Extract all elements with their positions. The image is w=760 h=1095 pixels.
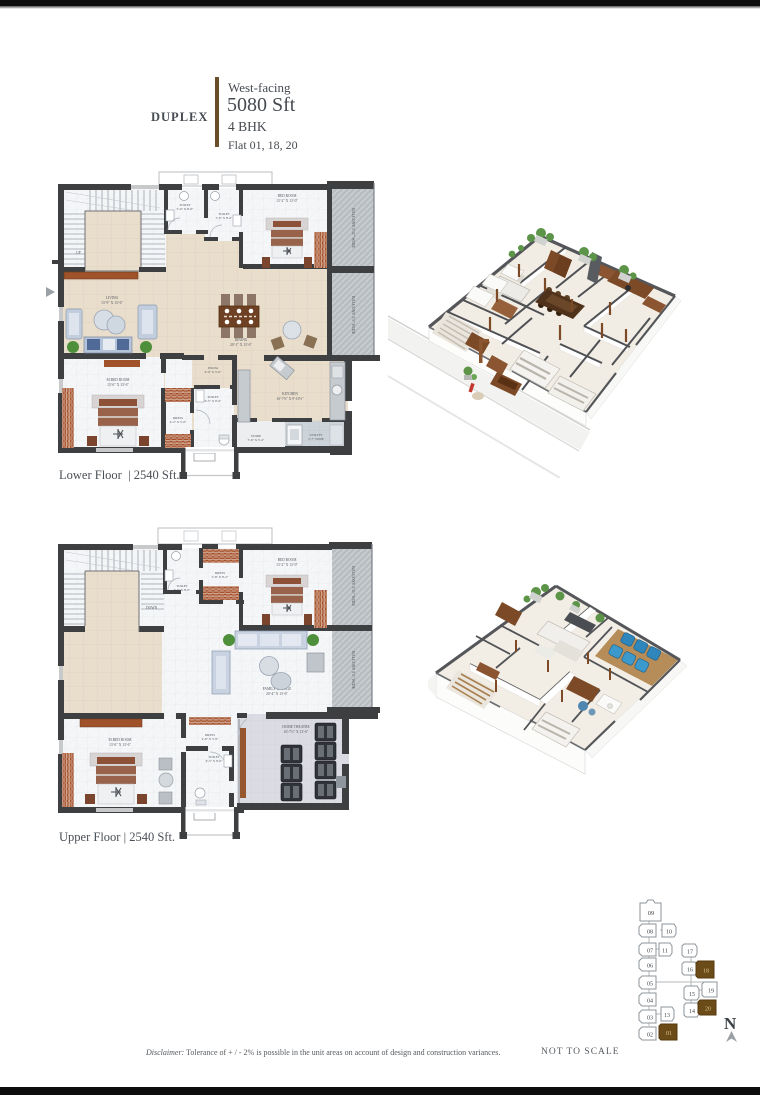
svg-text:17: 17 (687, 950, 693, 956)
svg-text:KITCHEN: KITCHEN (282, 392, 298, 396)
svg-text:LIVING: LIVING (106, 296, 119, 300)
svg-text:13'-6" X 13'-6": 13'-6" X 13'-6" (109, 743, 131, 747)
svg-text:19: 19 (708, 989, 714, 995)
svg-text:05: 05 (647, 982, 653, 988)
svg-text:BALCONY 5'11" WIDE: BALCONY 5'11" WIDE (351, 208, 356, 248)
svg-text:BALCONY 5'1" WIDE: BALCONY 5'1" WIDE (351, 296, 356, 334)
svg-text:DOWN: DOWN (146, 606, 158, 610)
svg-text:6'-0" X 5'-6": 6'-0" X 5'-6" (205, 370, 222, 374)
svg-text:16'-7½" X 9'-10½": 16'-7½" X 9'-10½" (276, 397, 304, 401)
svg-text:13'-2" X 13'-0": 13'-2" X 13'-0" (276, 563, 298, 567)
svg-text:16: 16 (687, 968, 693, 974)
svg-text:UP: UP (76, 251, 81, 255)
svg-text:16'-7½" X 13'-6": 16'-7½" X 13'-6" (284, 730, 309, 734)
svg-text:6'-5" X 9'-6": 6'-5" X 9'-6" (205, 399, 222, 403)
svg-text:08: 08 (647, 930, 653, 936)
svg-text:18: 18 (703, 969, 709, 975)
svg-text:5'-8" X 8'-2": 5'-8" X 8'-2" (212, 575, 229, 579)
svg-text:5'-7" WIDE: 5'-7" WIDE (308, 437, 324, 441)
svg-text:13: 13 (664, 1013, 670, 1019)
svg-text:13'-6" X 13'-6": 13'-6" X 13'-6" (107, 383, 129, 387)
svg-text:BED ROOM: BED ROOM (278, 558, 298, 562)
svg-text:20: 20 (705, 1007, 711, 1013)
svg-text:M.BED ROOM: M.BED ROOM (107, 378, 131, 382)
svg-text:5'-6" X 8'-6": 5'-6" X 8'-6" (177, 207, 194, 211)
svg-text:HOME THEATRE: HOME THEATRE (282, 725, 310, 729)
svg-text:BALCONY 5'11" WIDE: BALCONY 5'11" WIDE (351, 566, 356, 606)
svg-text:13'-9" X 13'-6": 13'-9" X 13'-6" (101, 301, 123, 305)
svg-text:M.BED ROOM: M.BED ROOM (109, 738, 133, 742)
svg-text:13'-2" X 13'-0": 13'-2" X 13'-0" (276, 199, 298, 203)
svg-text:20'-4" X 13'-6": 20'-4" X 13'-6" (266, 692, 288, 696)
svg-text:4'-2" X 5'-6": 4'-2" X 5'-6" (170, 420, 187, 424)
svg-text:04: 04 (647, 999, 653, 1005)
svg-text:02: 02 (647, 1033, 653, 1039)
svg-text:01: 01 (666, 1031, 672, 1037)
svg-text:BED ROOM: BED ROOM (278, 194, 298, 198)
svg-text:5'-6" X 8'-0": 5'-6" X 8'-0" (216, 216, 233, 220)
svg-text:09: 09 (648, 910, 655, 917)
svg-text:15: 15 (689, 992, 695, 998)
svg-text:5'-6" X 5'-2": 5'-6" X 5'-2" (248, 438, 265, 442)
svg-text:11: 11 (662, 949, 668, 955)
svg-text:07: 07 (647, 949, 653, 955)
svg-text:BALCONY 5'1" WIDE: BALCONY 5'1" WIDE (351, 651, 356, 689)
svg-text:4'-6" X 5'-6": 4'-6" X 5'-6" (202, 737, 219, 741)
svg-text:6'-5" X 9'-6": 6'-5" X 9'-6" (206, 759, 223, 763)
svg-text:20'-1" X 13'-6": 20'-1" X 13'-6" (230, 343, 252, 347)
svg-text:10: 10 (666, 930, 672, 936)
svg-text:DINING: DINING (235, 338, 248, 342)
svg-text:03: 03 (647, 1016, 653, 1022)
svg-text:14: 14 (689, 1009, 695, 1015)
svg-text:06: 06 (647, 964, 653, 970)
